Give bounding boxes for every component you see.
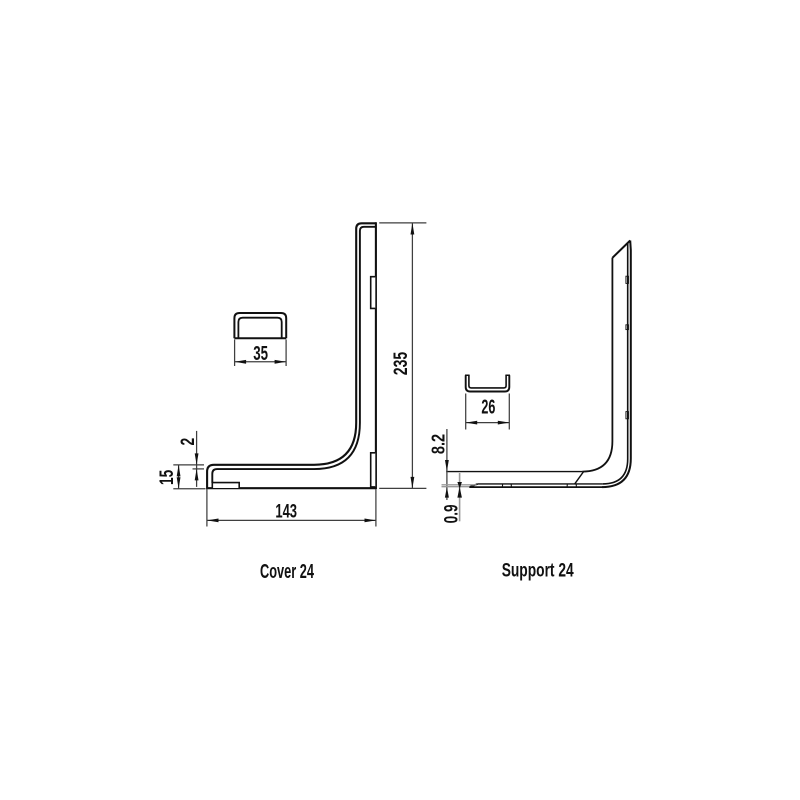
svg-text:2: 2 [178,438,199,446]
svg-text:143: 143 [275,502,297,523]
svg-text:Cover 24: Cover 24 [260,561,314,583]
svg-text:35: 35 [253,343,268,365]
svg-text:26: 26 [481,397,495,419]
svg-text:Support 24: Support 24 [502,560,574,581]
svg-text:0.9: 0.9 [441,504,463,523]
svg-text:15: 15 [156,470,178,485]
svg-text:8.2: 8.2 [428,434,449,454]
svg-text:235: 235 [390,352,412,375]
